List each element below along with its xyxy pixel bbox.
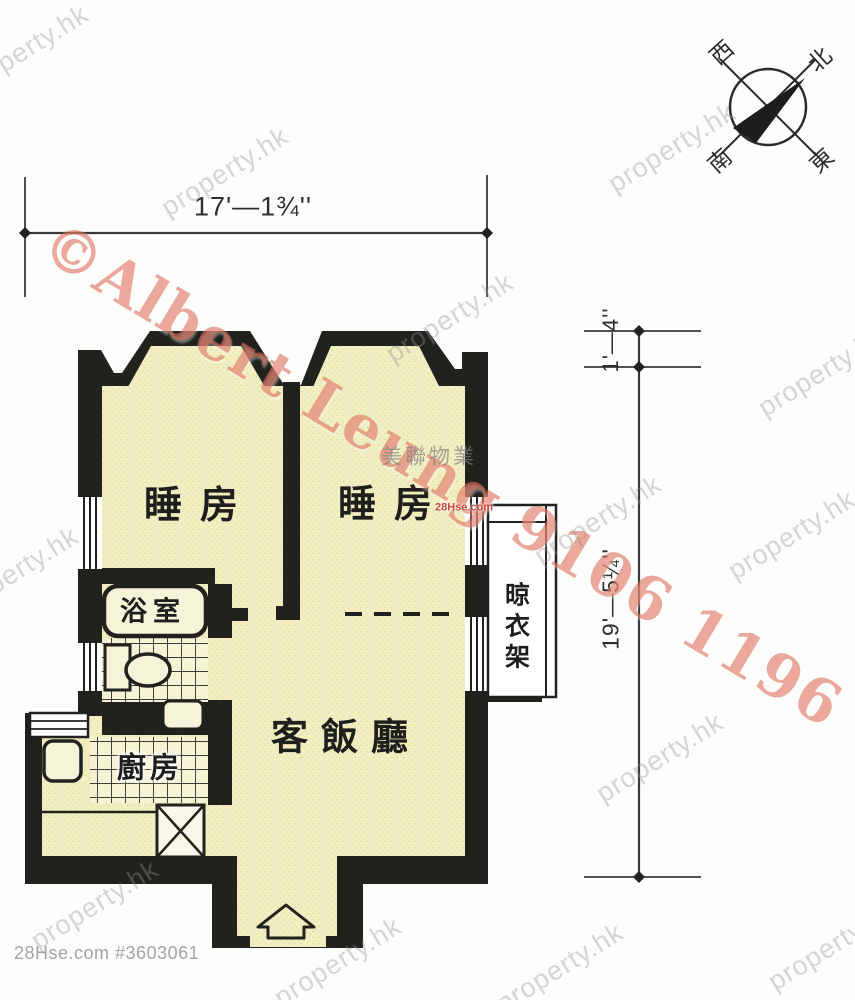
bedroom-left-label: 睡房: [144, 487, 256, 525]
dimension-right-small-label: 1'—4'': [600, 307, 622, 372]
kitchen-window: [30, 713, 88, 737]
floorplan-scan: 17'—1¾'' 1'—4'' 19'—5¼'' 西 北 南 東 睡房 睡房 浴…: [0, 0, 855, 1000]
watermark-agency: 美聯物業: [381, 447, 477, 468]
kitchen-shaft-box: [157, 805, 204, 857]
listing-id: 28Hse.com #3603061: [14, 944, 199, 962]
window-right-living: [465, 617, 488, 691]
kitchen-label: 廚房: [117, 755, 183, 784]
kitchen-door-opening: [208, 805, 232, 856]
window-left-bedroom: [78, 497, 102, 569]
bathroom-door-opening: [208, 638, 232, 700]
compass-rose: [720, 59, 816, 155]
bathroom-label: 浴室: [120, 599, 186, 626]
dimension-width-label: 17'—1¾'': [194, 194, 312, 221]
bedroom-left-door-opening: [215, 568, 283, 586]
window-left-bathroom: [78, 643, 102, 691]
toilet: [126, 654, 170, 686]
watermark-stamp: 28Hse.com: [435, 503, 493, 514]
drying-rack-label: 晾衣架: [503, 582, 528, 675]
bedroom-left-floor: [102, 386, 283, 568]
bathroom-basin: [163, 701, 203, 729]
living-dining-label: 客飯廳: [271, 720, 421, 757]
entrance-vestibule-floor: [237, 856, 337, 947]
kitchen-sink: [44, 741, 81, 781]
